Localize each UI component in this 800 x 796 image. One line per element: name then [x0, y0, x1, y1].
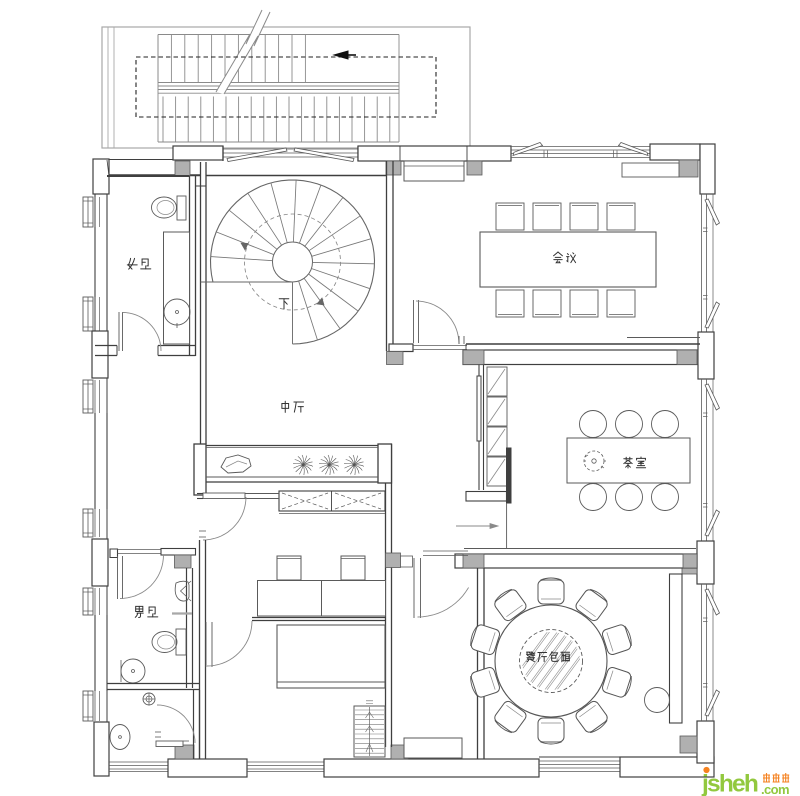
svg-text:jsheh: jsheh: [701, 771, 758, 796]
svg-text:.com: .com: [761, 782, 789, 796]
